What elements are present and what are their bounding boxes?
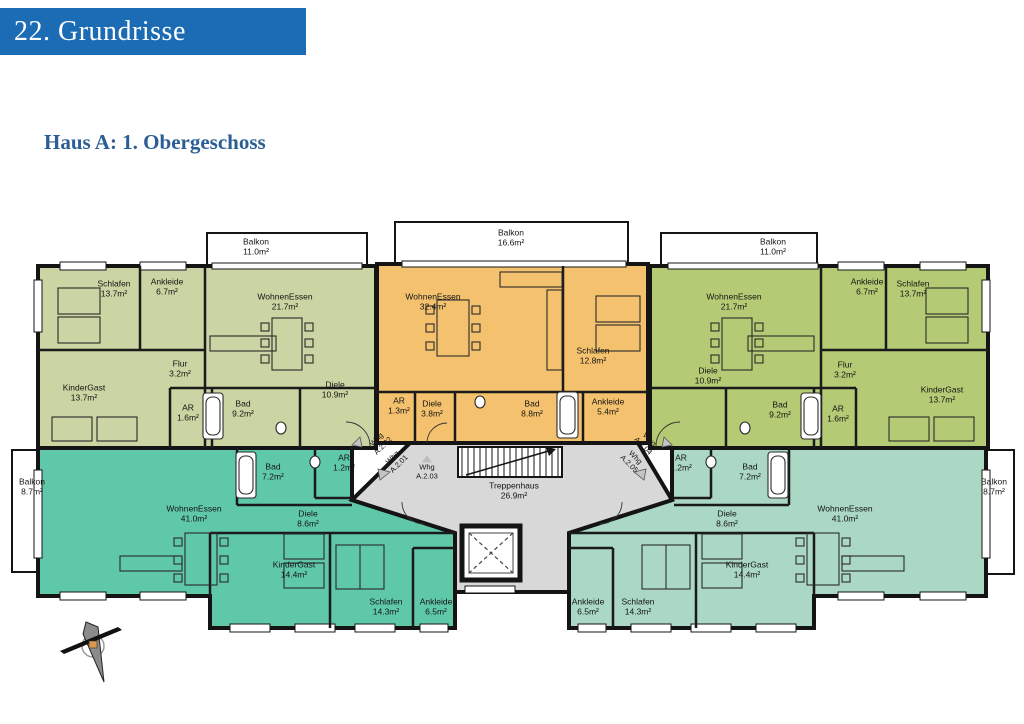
room-label: KinderGast14.4m² — [726, 560, 769, 579]
floor-plan-drawing — [0, 0, 1024, 724]
room-label: Diele8.6m² — [716, 509, 738, 528]
entrance-arrow-icon — [422, 455, 432, 462]
entrance-label-a203: Whg A.2.03 — [409, 455, 445, 480]
room-label: Flur3.2m² — [169, 359, 191, 378]
room-label: Bad7.2m² — [739, 462, 761, 481]
room-label: WohnenEssen41.0m² — [817, 504, 872, 523]
room-label: Ankleide6.5m² — [420, 597, 453, 616]
room-label: WohnenEssen21.7m² — [257, 292, 312, 311]
page: 22. Grundrisse Haus A: 1. Obergeschoss — [0, 0, 1024, 724]
staircase — [458, 447, 562, 477]
elevator — [462, 526, 520, 580]
room-label: Bad7.2m² — [262, 462, 284, 481]
room-label: Ankleide6.7m² — [851, 277, 884, 296]
room-label: Diele10.9m² — [322, 380, 348, 399]
room-label: Diele8.6m² — [297, 509, 319, 528]
room-label: Balkon8.7m² — [981, 477, 1007, 496]
room-label: AR1.2m² — [333, 453, 355, 472]
room-label: Ankleide6.7m² — [151, 277, 184, 296]
room-label: Balkon11.0m² — [243, 237, 269, 256]
room-label: Ankleide5.4m² — [592, 397, 625, 416]
room-label: Ankleide6.5m² — [572, 597, 605, 616]
room-label: AR1.6m² — [827, 404, 849, 423]
room-label: Balkon11.0m² — [760, 237, 786, 256]
room-label: AR1.3m² — [388, 396, 410, 415]
stairwell-label: Treppenhaus26.9m² — [489, 481, 539, 500]
room-label: KinderGast14.4m² — [273, 560, 316, 579]
room-label: AR1.6m² — [177, 403, 199, 422]
room-label: Schlafen14.3m² — [369, 597, 402, 616]
room-label: Schlafen12.8m² — [576, 346, 609, 365]
room-label: AR1.2m² — [670, 453, 692, 472]
balcony-top-left — [207, 233, 367, 267]
room-label: KinderGast13.7m² — [63, 383, 106, 402]
room-label: Schlafen14.3m² — [621, 597, 654, 616]
room-label: Flur3.2m² — [834, 360, 856, 379]
room-label: Balkon8.7m² — [19, 477, 45, 496]
room-label: Bad8.8m² — [521, 399, 543, 418]
room-label: Diele3.8m² — [421, 399, 443, 418]
room-label: WohnenEssen41.0m² — [166, 504, 221, 523]
room-label: WohnenEssen32.4m² — [405, 292, 460, 311]
floor-plan: Schlafen13.7m² Ankleide6.7m² WohnenEssen… — [0, 0, 1024, 724]
room-label: KinderGast13.7m² — [921, 385, 964, 404]
balcony-top-right — [661, 233, 817, 267]
room-label: Schlafen13.7m² — [97, 279, 130, 298]
room-label: Bad9.2m² — [769, 400, 791, 419]
room-label: WohnenEssen21.7m² — [706, 292, 761, 311]
room-label: Schlafen13.7m² — [896, 279, 929, 298]
room-label: Bad9.2m² — [232, 399, 254, 418]
room-label: Balkon16.6m² — [498, 228, 524, 247]
compass-icon — [60, 622, 122, 682]
room-label: Diele10.9m² — [695, 366, 721, 385]
